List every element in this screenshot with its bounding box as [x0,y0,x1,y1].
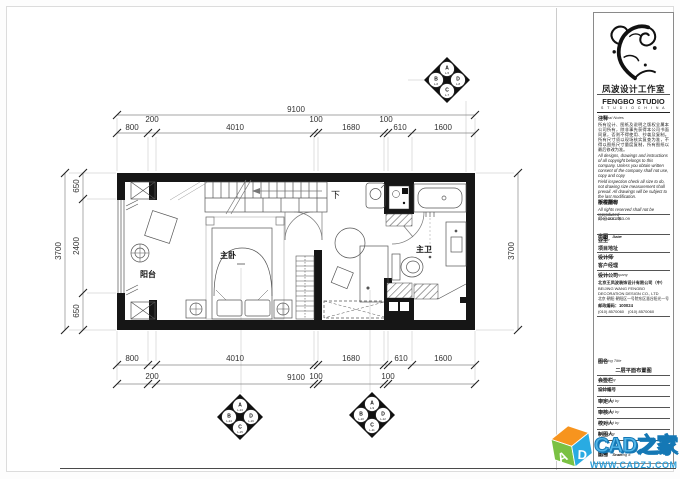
svg-text:1680: 1680 [342,123,360,132]
designer-value: 客户经理 [598,262,618,269]
staircase [170,180,327,214]
divider [597,396,670,397]
floor-plan: 9100 800 200 4010 100 1680 100 610 1600 … [0,0,680,479]
studio-name-en: FENGBO STUDIO [594,97,673,106]
svg-text:L-15: L-15 [237,430,243,434]
divider [597,316,670,317]
divider [597,94,670,95]
divider [597,234,670,235]
divider [597,112,670,113]
svg-text:800: 800 [125,354,139,363]
drawing-title-value: 二层平面布置图 [594,367,673,374]
balcony-furniture [131,182,177,319]
cadzj-brand-text[interactable]: CAD之家 [594,429,677,459]
doc-date: 月 日 2014年 [598,216,621,222]
dimension-ticks [61,111,522,388]
notes-en-1: All designs, drawings and instructions o… [598,153,669,178]
dim-top-overall: 9100 [287,105,305,114]
svg-text:1600: 1600 [434,123,452,132]
cadzj-url[interactable]: WWW.CADZJ.COM [590,460,678,470]
svg-text:3700: 3700 [54,242,63,260]
svg-text:L-11: L-11 [369,428,375,432]
toilet-icon [392,254,400,280]
svg-text:L-5: L-5 [445,71,449,75]
signed-en: Signed by [598,377,616,382]
svg-text:2400: 2400 [72,237,81,255]
svg-text:L-9: L-9 [370,406,374,410]
svg-text:800: 800 [125,123,139,132]
title-block: 凤波设计工作室 FENGBO STUDIO S T U D I O C H I … [593,12,674,464]
svg-text:610: 610 [393,123,407,132]
svg-text:100: 100 [379,115,393,124]
elevation-marker-top: A L-5 B L-6 D L-8 C L-7 [424,57,470,103]
room-label-balcony: 阳台 [140,269,156,279]
svg-text:1600: 1600 [434,354,452,363]
stair-down-label: 下 [331,190,340,200]
drawing-title-en: Drawing Title [598,358,621,363]
divider [597,252,670,253]
bed [206,217,284,319]
company-name-en2: DECORATION DESIGN CO., LTD [598,291,669,296]
svg-text:650: 650 [72,179,81,193]
dim-bottom-overall: 9100 [287,373,305,382]
hall-furniture [324,228,388,318]
approved-en: Checked by [598,398,619,403]
owner-value: 项目地址 [598,245,618,252]
company-en: Design company [598,272,628,277]
notes-label-en: General Notes [598,115,624,120]
svg-text:L-14: L-14 [226,419,232,423]
notes-en-2: Field inspection check all size to do, n… [598,179,669,199]
divider [597,375,670,376]
svg-text:4010: 4010 [226,123,244,132]
studio-logo-flourish [599,16,669,82]
svg-text:L-13: L-13 [237,408,243,412]
svg-text:L-7: L-7 [445,93,449,97]
room-label-bedroom: 主卧 [220,250,236,260]
svg-text:610: 610 [394,354,408,363]
balcony-table [145,211,178,244]
copyright-cn-right: 不得翻印 [598,199,618,206]
owner-en: Owner [598,237,610,242]
wardrobe-icon [296,256,314,319]
svg-text:100: 100 [309,372,323,381]
cube-letter-d: D [577,447,587,462]
svg-text:100: 100 [381,372,395,381]
svg-text:3700: 3700 [507,242,516,260]
desk [360,246,388,302]
notes-cn: 所有设计、图纸及说明之版权全属本公司所有，除非事先获得本公司书面同意，否则不得使… [598,122,669,152]
svg-text:100: 100 [309,115,323,124]
svg-text:L-16: L-16 [248,419,254,423]
studio-sub: S T U D I O C H I N A [594,106,673,110]
svg-text:200: 200 [145,115,159,124]
svg-text:1680: 1680 [342,354,360,363]
svg-text:L-8: L-8 [456,82,460,86]
svg-text:L-12: L-12 [380,417,386,421]
designer-en: Designer [598,254,614,259]
svg-text:650: 650 [72,304,81,318]
nightstands [186,300,292,318]
checked-en: Checked by [598,409,619,414]
divider [597,270,670,271]
vanity [446,222,466,266]
divider [597,214,670,215]
cadzj-watermark[interactable]: A D CAD之家 WWW.CADZJ.COM [546,419,680,477]
divider [597,407,670,408]
stool [331,267,353,289]
room-label-bathroom: 主卫 [416,244,432,254]
design-no-value: SJ02# [598,387,610,392]
dimension-texts: 9100 800 200 4010 100 1680 100 610 1600 … [54,105,516,382]
dimension-lines [65,115,518,384]
svg-text:4010: 4010 [226,354,244,363]
company-address: 北京·朝阳·朝阳区一号院东区慧谷阳光一号 [598,297,669,302]
svg-text:L-6: L-6 [434,82,438,86]
divider [597,385,670,386]
elevation-marker-bottom-left: A L-13 B L-14 D L-16 C L-15 [217,394,263,440]
elevation-marker-bottom-right: A L-9 B L-10 D L-12 C L-11 [349,392,395,438]
balcony-window [118,200,138,295]
svg-text:200: 200 [145,372,159,381]
round-table [335,228,365,258]
svg-text:L-10: L-10 [358,417,364,421]
company-tel: (010) 8570060 (010) 8570060 [598,309,669,315]
